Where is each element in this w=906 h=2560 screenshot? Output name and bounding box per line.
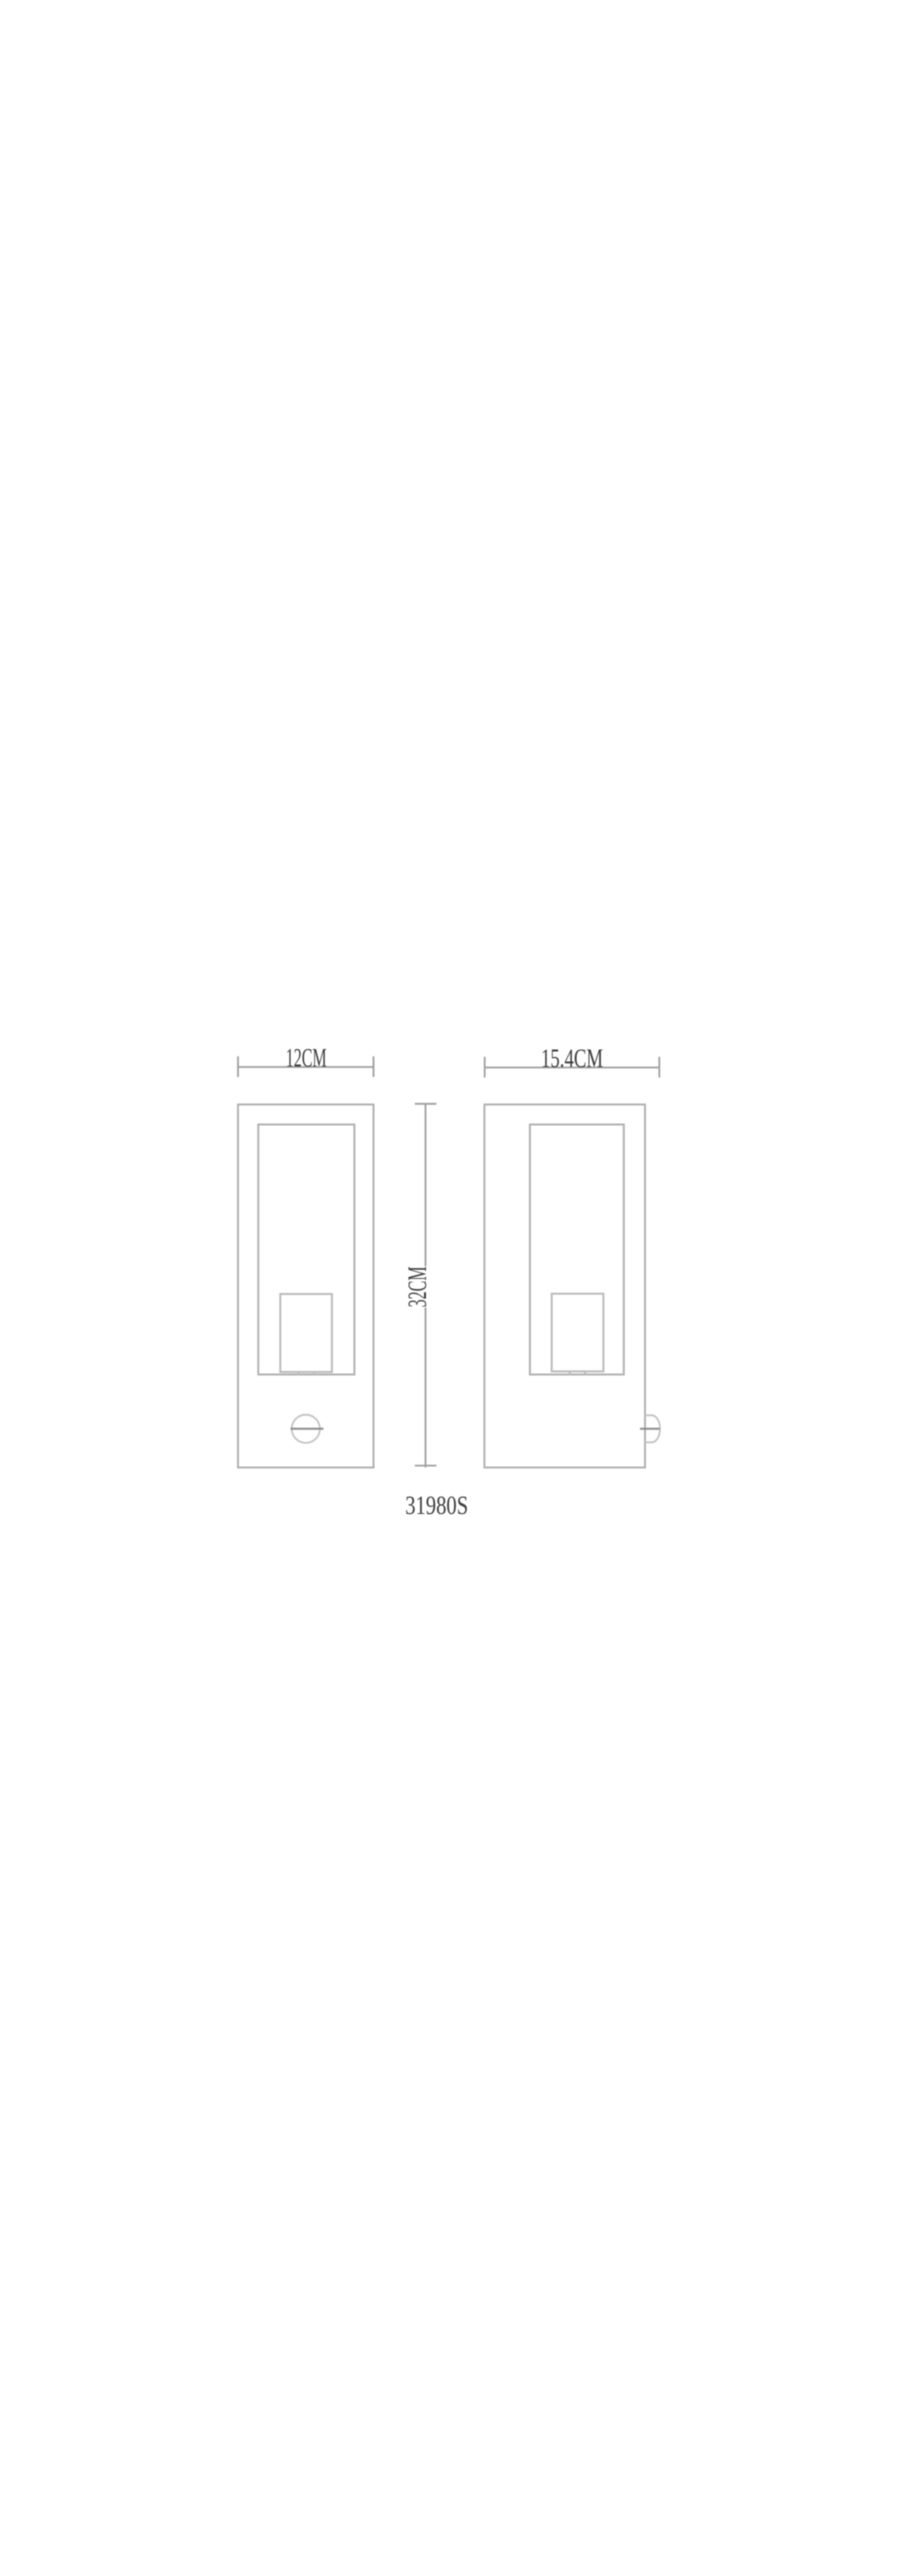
svg-text:31980S: 31980S: [405, 1491, 468, 1520]
svg-text:32CM: 32CM: [403, 1266, 432, 1307]
svg-text:15.4CM: 15.4CM: [541, 1044, 603, 1073]
svg-text:12CM: 12CM: [286, 1044, 327, 1073]
